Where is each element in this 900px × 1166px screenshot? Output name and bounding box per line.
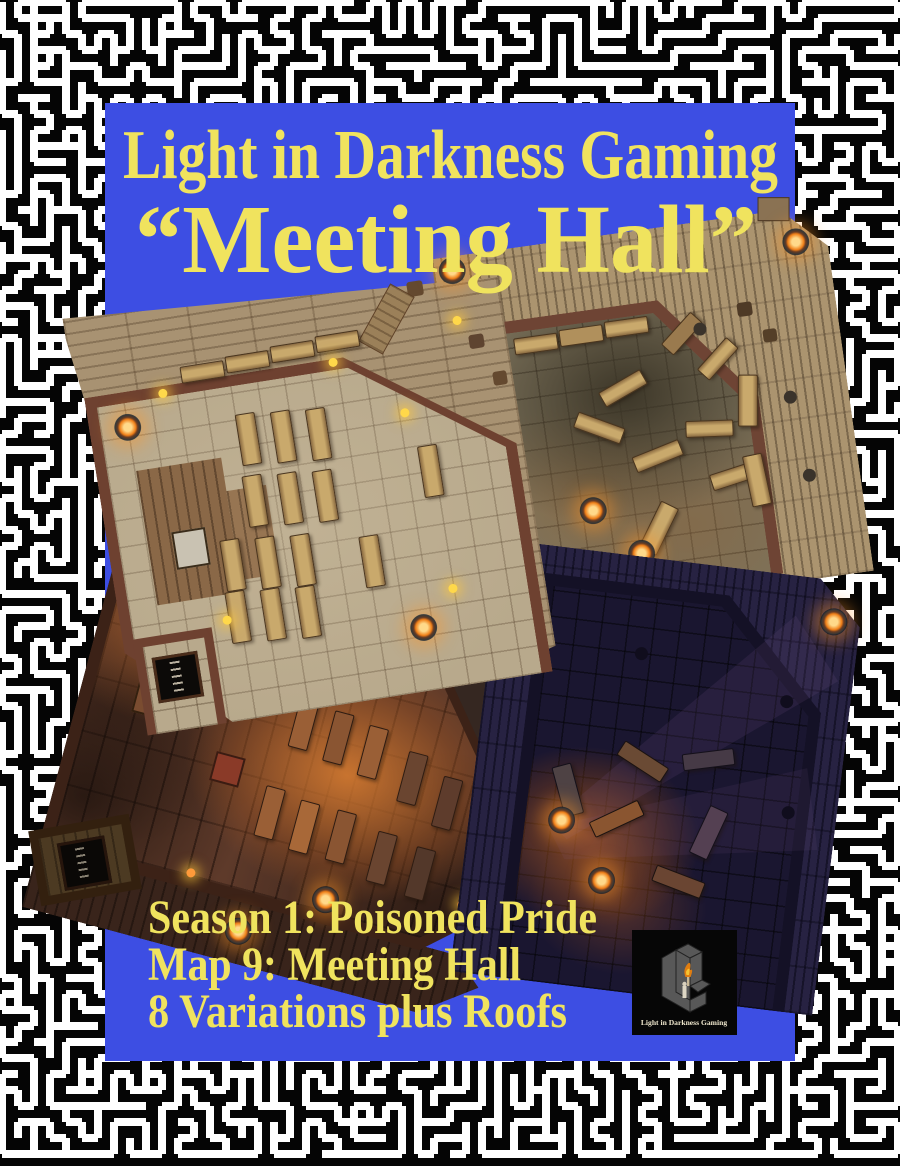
- svg-text:8 Variations plus Roofs: 8 Variations plus Roofs: [148, 985, 567, 1038]
- svg-text:Light in Darkness Gaming: Light in Darkness Gaming: [123, 117, 778, 194]
- svg-text:Season 1: Poisoned Pride: Season 1: Poisoned Pride: [148, 891, 597, 944]
- svg-text:Light in Darkness Gaming: Light in Darkness Gaming: [641, 1018, 727, 1027]
- svg-text:Map 9: Meeting Hall: Map 9: Meeting Hall: [148, 938, 521, 991]
- svg-text:“Meeting Hall”: “Meeting Hall”: [135, 186, 757, 293]
